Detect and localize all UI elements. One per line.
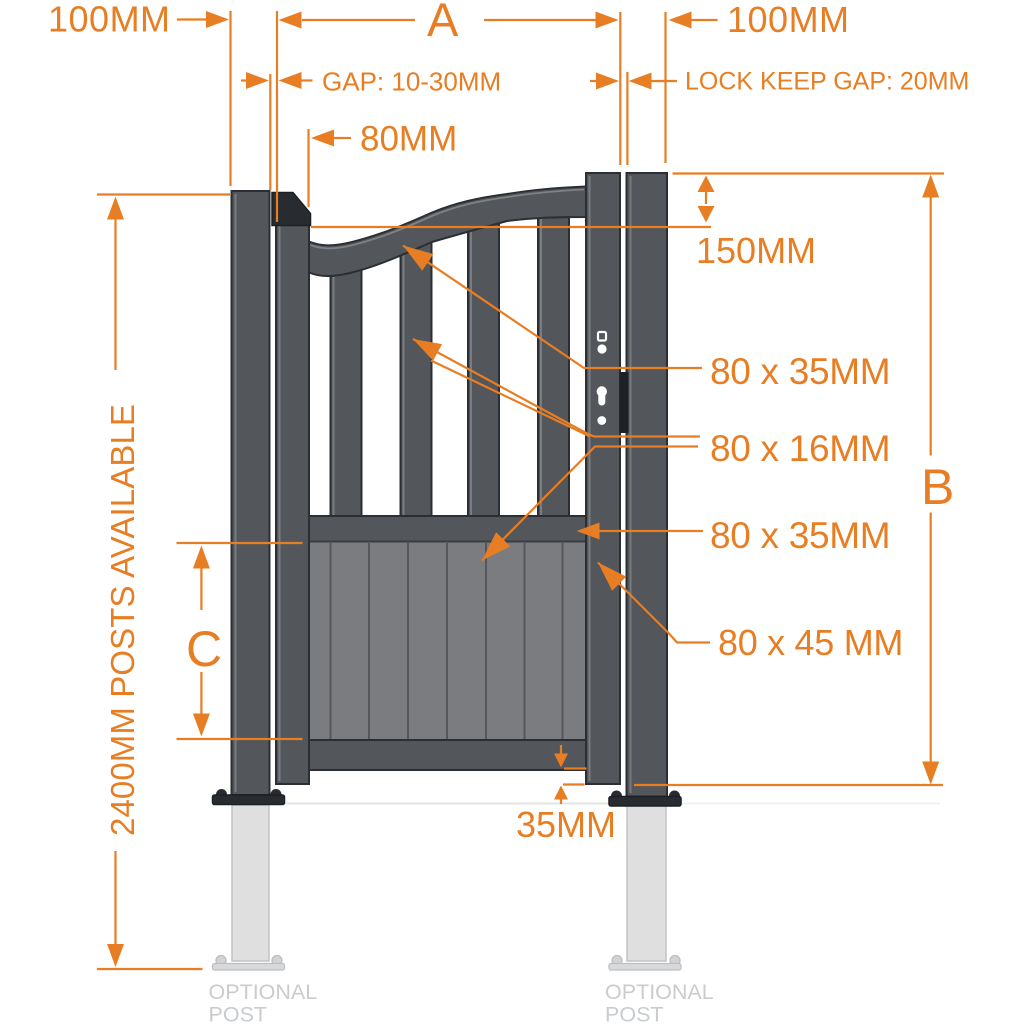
svg-text:POST: POST [605, 1003, 664, 1024]
svg-text:GAP: 10-30MM: GAP: 10-30MM [322, 67, 501, 97]
svg-text:OPTIONAL: OPTIONAL [209, 980, 318, 1004]
svg-text:C: C [186, 621, 222, 677]
svg-text:80 x 35MM: 80 x 35MM [710, 351, 890, 392]
svg-text:80 x 45 MM: 80 x 45 MM [718, 622, 903, 663]
svg-text:LOCK KEEP GAP: 20MM: LOCK KEEP GAP: 20MM [685, 68, 969, 96]
svg-text:POST: POST [209, 1003, 268, 1024]
svg-text:A: A [427, 0, 459, 46]
svg-text:OPTIONAL: OPTIONAL [605, 980, 714, 1004]
svg-text:150MM: 150MM [696, 230, 816, 271]
svg-text:B: B [921, 459, 954, 515]
svg-text:35MM: 35MM [516, 804, 616, 845]
svg-text:2400MM POSTS AVAILABLE: 2400MM POSTS AVAILABLE [104, 404, 141, 836]
svg-text:100MM: 100MM [48, 0, 171, 40]
svg-text:80 x 35MM: 80 x 35MM [710, 515, 890, 556]
svg-text:100MM: 100MM [727, 0, 850, 40]
svg-text:80MM: 80MM [360, 120, 457, 159]
svg-text:80 x 16MM: 80 x 16MM [710, 428, 890, 469]
